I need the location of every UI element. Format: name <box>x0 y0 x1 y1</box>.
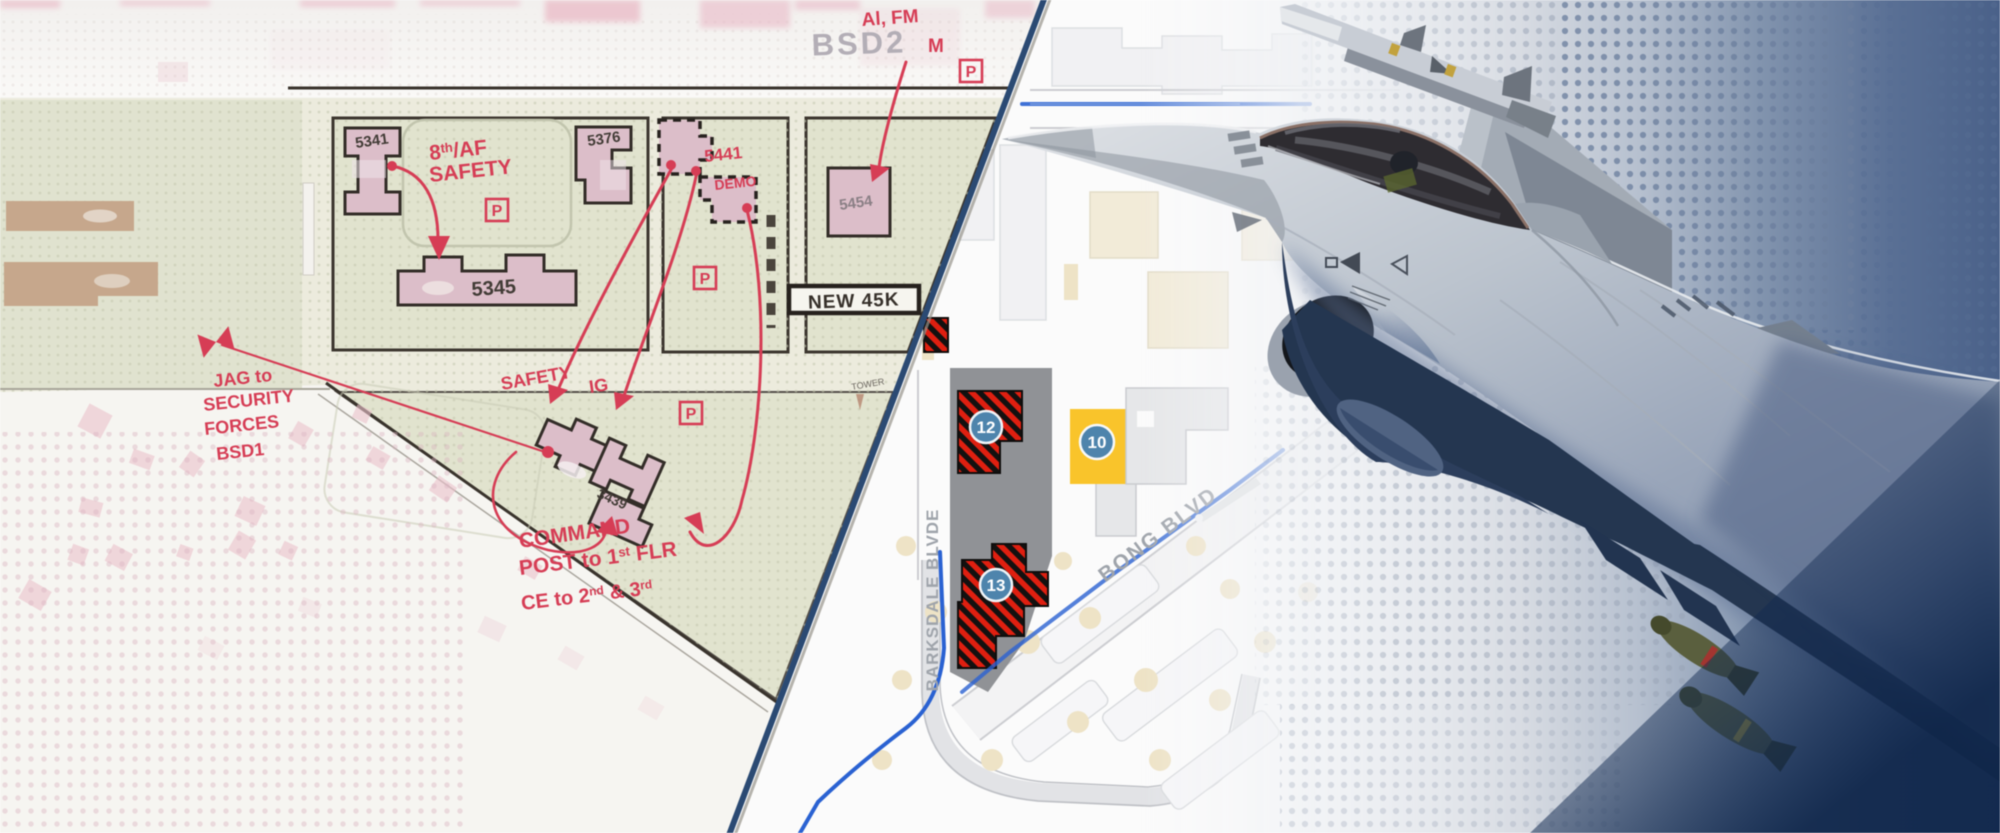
svg-text:Al, FM: Al, FM <box>861 6 919 31</box>
svg-text:IG: IG <box>588 375 610 397</box>
svg-text:P: P <box>686 406 697 423</box>
svg-text:12: 12 <box>977 418 996 437</box>
svg-text:BARKSDALE BLVDE: BARKSDALE BLVDE <box>923 509 942 692</box>
svg-text:BSD2: BSD2 <box>811 24 907 62</box>
svg-text:NEW 45K: NEW 45K <box>808 289 900 313</box>
svg-text:5441: 5441 <box>703 143 743 166</box>
svg-text:P: P <box>966 64 977 81</box>
svg-text:M: M <box>928 36 944 57</box>
svg-text:P: P <box>700 271 711 288</box>
svg-text:P: P <box>492 203 503 220</box>
svg-text:5345: 5345 <box>471 276 517 301</box>
